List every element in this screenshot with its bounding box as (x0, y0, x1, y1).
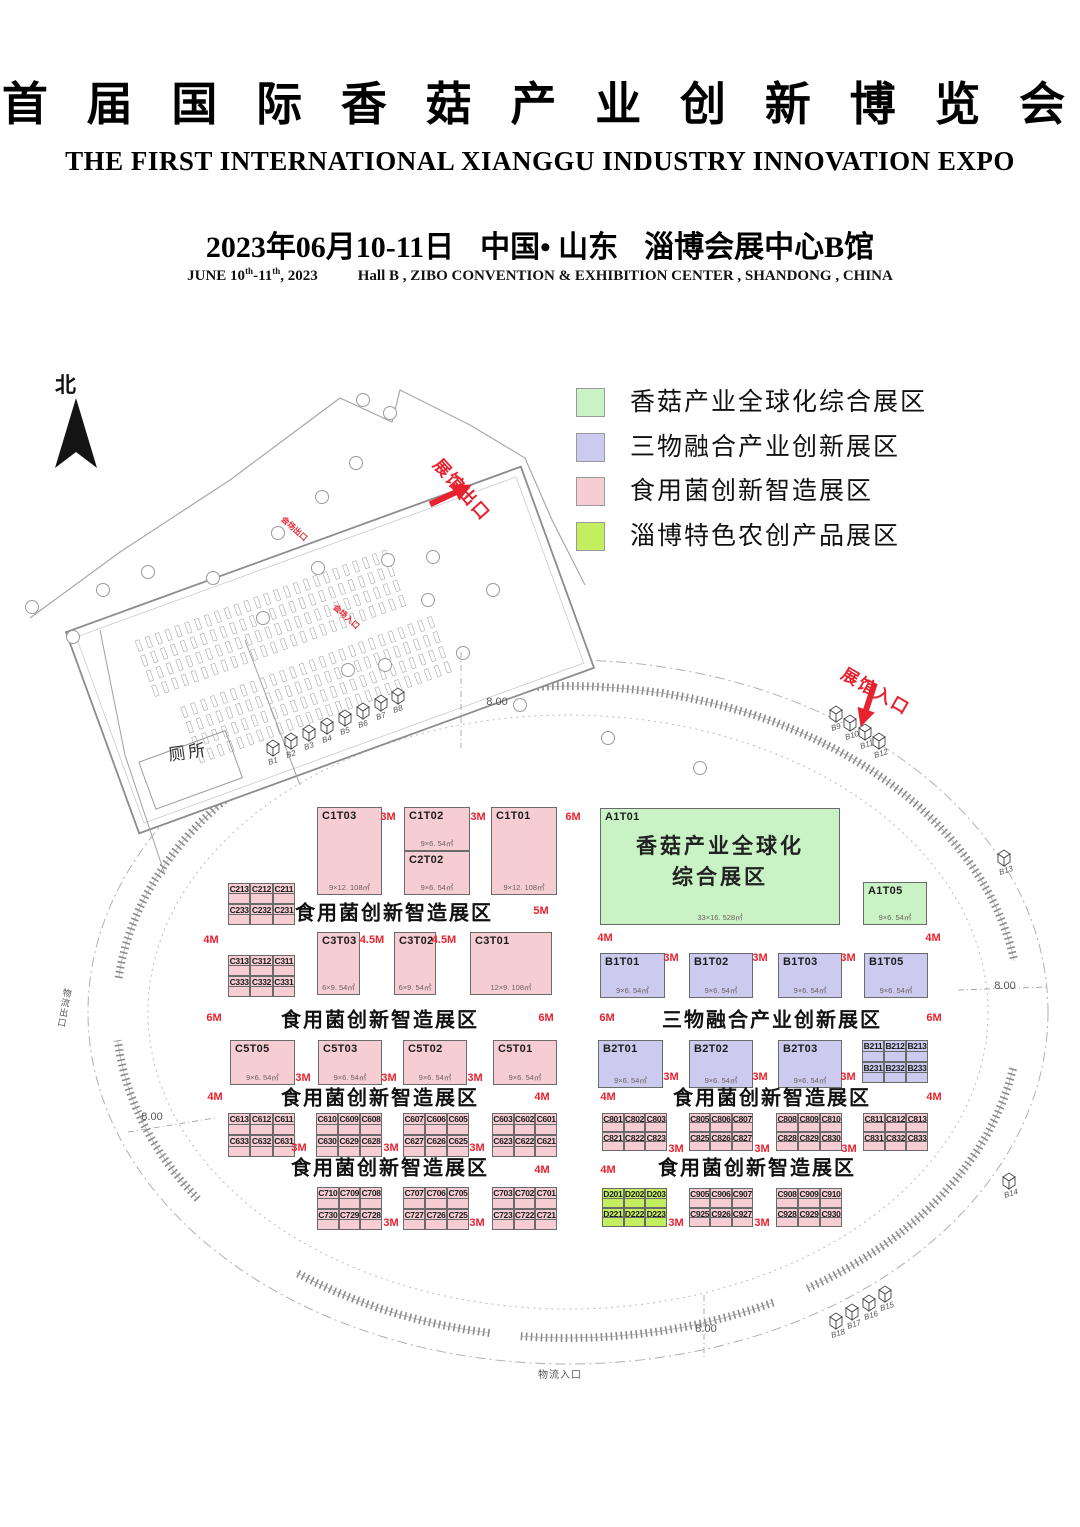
booth-C802[interactable]: C802 (624, 1113, 646, 1132)
booth-id: A1T05 (868, 885, 903, 897)
booth-id: C807 (733, 1114, 752, 1123)
booth-dimensions: 9×6. 54㎡ (779, 1075, 841, 1086)
booth-C601[interactable]: C601 (535, 1113, 557, 1135)
booth-id: C728 (361, 1210, 381, 1221)
booth-id: C627 (404, 1136, 424, 1147)
booth-id: C212 (251, 884, 271, 894)
booth-C833[interactable]: C833 (906, 1132, 928, 1151)
booth-group: C805C806C807C825C826C827 (689, 1113, 753, 1151)
svg-text:B15: B15 (879, 1300, 896, 1313)
booth-id: C813 (907, 1114, 927, 1123)
booth-id: C805 (690, 1114, 709, 1123)
booth-C602[interactable]: C602 (514, 1113, 536, 1135)
booth-id: C3T01 (475, 935, 510, 947)
booth-C708[interactable]: C708 (360, 1187, 382, 1209)
booth-C730[interactable]: C730 (317, 1209, 339, 1231)
booth-dimensions: 9×12. 108㎡ (318, 882, 381, 893)
booth-id: D223 (646, 1209, 666, 1219)
booth-id: C613 (229, 1114, 249, 1125)
booth-dimensions: 9×6. 54㎡ (864, 912, 926, 923)
booth-C705[interactable]: C705 (447, 1187, 469, 1209)
logistics-entrance-label: 物流入口 (538, 1366, 582, 1381)
booth-C621[interactable]: C621 (535, 1135, 557, 1157)
booth-group: C603C602C601C623C622C621 (492, 1113, 557, 1157)
booth-group: C908C909C910C928C929C930 (776, 1188, 842, 1227)
booth-C626[interactable]: C626 (425, 1135, 447, 1157)
booth-C606[interactable]: C606 (425, 1113, 447, 1135)
booth-dimensions: 9×6. 54㎡ (690, 1075, 752, 1086)
booth-id: C828 (777, 1133, 797, 1142)
booth-C825[interactable]: C825 (689, 1132, 710, 1151)
booth-id: C708 (361, 1188, 381, 1199)
booth-C313[interactable]: C313 (228, 955, 250, 976)
perimeter-booth-B12: B12 (873, 733, 890, 760)
booth-B212[interactable]: B212 (884, 1040, 906, 1062)
booth-C929[interactable]: C929 (798, 1208, 820, 1228)
perimeter-booth-B4: B4 (321, 718, 334, 745)
perimeter-booth-B13: B13 (998, 850, 1015, 877)
booth-id: C710 (318, 1188, 338, 1199)
booth-C808[interactable]: C808 (776, 1113, 798, 1132)
svg-text:B16: B16 (863, 1309, 880, 1322)
booth-C805[interactable]: C805 (689, 1113, 710, 1132)
booth-group: B211B212B213B231B232B233 (862, 1040, 928, 1083)
booth-dimensions: 9×6. 54㎡ (690, 985, 752, 996)
booth-id: C810 (821, 1114, 841, 1123)
booth-id: C1T01 (496, 810, 531, 822)
booth-B231[interactable]: B231 (862, 1062, 884, 1084)
perimeter-booth-B10: B10 (844, 715, 861, 742)
booth-C907[interactable]: C907 (732, 1188, 753, 1208)
booth-C803[interactable]: C803 (645, 1113, 667, 1132)
booth-group: C707C706C705C727C726C725 (403, 1187, 469, 1230)
booth-C821[interactable]: C821 (602, 1132, 624, 1151)
booth-id: C5T01 (498, 1043, 533, 1055)
booth-id: C233 (229, 905, 249, 915)
booth-id: C703 (493, 1188, 513, 1199)
booth-id: C232 (251, 905, 271, 915)
booth-id: C722 (515, 1210, 535, 1221)
plan-linework: 北B1B2B3B4B5B6B7B8B9B10B11B12B13B14B18B17… (0, 0, 1080, 1527)
booth-id: C726 (426, 1210, 446, 1221)
booth-B213[interactable]: B213 (906, 1040, 928, 1062)
booth-id: C830 (821, 1133, 841, 1142)
booth-C702[interactable]: C702 (514, 1187, 536, 1209)
booth-C630[interactable]: C630 (316, 1135, 338, 1157)
booth-C332[interactable]: C332 (250, 976, 272, 997)
booth-C827[interactable]: C827 (732, 1132, 753, 1151)
booth-id: C622 (515, 1136, 535, 1147)
booth-C930[interactable]: C930 (820, 1208, 842, 1228)
booth-group: C808C809C810C828C829C830 (776, 1113, 842, 1151)
booth-C906[interactable]: C906 (710, 1188, 731, 1208)
booth-C905[interactable]: C905 (689, 1188, 710, 1208)
perimeter-booth-B2: B2 (285, 733, 298, 760)
booth-C701[interactable]: C701 (535, 1187, 557, 1209)
booth-B233[interactable]: B233 (906, 1062, 928, 1084)
booth-group: C905C906C907C925C926C927 (689, 1188, 753, 1227)
booth-id: C808 (777, 1114, 797, 1123)
booth-C633[interactable]: C633 (228, 1135, 250, 1157)
booth-C707[interactable]: C707 (403, 1187, 425, 1209)
perimeter-booth-B8: B8 (392, 688, 405, 715)
booth-id: C927 (733, 1209, 752, 1219)
zone-name: 香菇产业全球化综合展区 (601, 831, 839, 893)
booth-id: C602 (515, 1114, 535, 1125)
booth-id: B1T02 (694, 956, 729, 968)
booth-id: C811 (864, 1114, 884, 1123)
booth-id: C629 (339, 1136, 359, 1147)
perimeter-booth-B3: B3 (303, 725, 316, 752)
booth-id: B233 (907, 1063, 927, 1074)
booth-C233[interactable]: C233 (228, 904, 250, 925)
booth-id: B212 (885, 1041, 905, 1052)
booth-id: C601 (536, 1114, 556, 1125)
booth-B2T02[interactable]: B2T029×6. 54㎡ (689, 1040, 753, 1088)
booth-group: C703C702C701C723C722C721 (492, 1187, 557, 1230)
booth-id: C928 (777, 1209, 797, 1219)
booth-dimensions: 9×6. 54㎡ (494, 1072, 556, 1083)
booth-C830[interactable]: C830 (820, 1132, 842, 1151)
booth-C829[interactable]: C829 (798, 1132, 820, 1151)
booth-id: C727 (404, 1210, 424, 1221)
expo-floorplan-page: 首 届 国 际 香 菇 产 业 创 新 博 览 会 THE FIRST INTE… (0, 0, 1080, 1527)
booth-id: C723 (493, 1210, 513, 1221)
booth-C613[interactable]: C613 (228, 1113, 250, 1135)
booth-C908[interactable]: C908 (776, 1188, 798, 1208)
booth-id: C607 (404, 1114, 424, 1125)
booth-id: C707 (404, 1188, 424, 1199)
perimeter-booth-B17: B17 (846, 1304, 863, 1331)
booth-C726[interactable]: C726 (425, 1209, 447, 1231)
booth-group: C607C606C605C627C626C625 (403, 1113, 469, 1157)
booth-D223[interactable]: D223 (645, 1208, 667, 1228)
booth-id: C612 (251, 1114, 271, 1125)
booth-id: B231 (863, 1063, 883, 1074)
booth-C709[interactable]: C709 (339, 1187, 361, 1209)
booth-id: C332 (251, 977, 271, 987)
booth-C925[interactable]: C925 (689, 1208, 710, 1228)
booth-id: D201 (603, 1189, 623, 1199)
booth-id: C802 (625, 1114, 645, 1123)
booth-id: C609 (339, 1114, 359, 1125)
booth-C812[interactable]: C812 (885, 1113, 907, 1132)
booth-group: C610C609C608C630C629C628 (316, 1113, 382, 1157)
booth-C3T03[interactable]: C3T036×9. 54㎡ (317, 932, 360, 995)
booth-C928[interactable]: C928 (776, 1208, 798, 1228)
booth-C609[interactable]: C609 (338, 1113, 360, 1135)
booth-C909[interactable]: C909 (798, 1188, 820, 1208)
booth-id: C823 (646, 1133, 666, 1142)
booth-C2T02[interactable]: C2T029×6. 54㎡ (404, 851, 470, 895)
booth-C828[interactable]: C828 (776, 1132, 798, 1151)
booth-id: C626 (426, 1136, 446, 1147)
booth-dimensions: 9×6. 54㎡ (231, 1072, 294, 1083)
booth-C801[interactable]: C801 (602, 1113, 624, 1132)
booth-id: C809 (799, 1114, 819, 1123)
booth-id: C822 (625, 1133, 645, 1142)
booth-C729[interactable]: C729 (339, 1209, 361, 1231)
booth-id: C826 (711, 1133, 730, 1142)
booth-B232[interactable]: B232 (884, 1062, 906, 1084)
booth-B1T01[interactable]: B1T019×6. 54㎡ (600, 953, 665, 998)
booth-C725[interactable]: C725 (447, 1209, 469, 1231)
booth-id: C812 (886, 1114, 906, 1123)
booth-C627[interactable]: C627 (403, 1135, 425, 1157)
booth-C331[interactable]: C331 (273, 976, 295, 997)
svg-text:B13: B13 (998, 864, 1015, 877)
booth-id: C831 (864, 1133, 884, 1142)
booth-dimensions: 6×9. 54㎡ (395, 982, 435, 993)
booth-dimensions: 9×6. 54㎡ (404, 1072, 466, 1083)
booth-id: C313 (229, 956, 249, 966)
booth-id: C709 (340, 1188, 360, 1199)
booth-A1T01[interactable]: A1T01香菇产业全球化综合展区33×16. 528㎡ (600, 808, 840, 925)
booth-C807[interactable]: C807 (732, 1113, 753, 1132)
booth-id: C2T02 (409, 854, 444, 866)
booth-id: C1T03 (322, 810, 357, 822)
svg-text:B11: B11 (859, 738, 875, 751)
booth-D222[interactable]: D222 (624, 1208, 646, 1228)
booth-id: C610 (317, 1114, 337, 1125)
booth-id: C721 (536, 1210, 556, 1221)
booth-dimensions: 9×6. 54㎡ (601, 985, 664, 996)
booth-id: C628 (361, 1136, 381, 1147)
booth-id: C725 (448, 1210, 468, 1221)
booth-id: C632 (251, 1136, 271, 1147)
booth-C832[interactable]: C832 (885, 1132, 907, 1151)
booth-C211[interactable]: C211 (273, 883, 295, 904)
booth-id: C701 (536, 1188, 556, 1199)
booth-group: C613C612C611C633C632C631 (228, 1113, 295, 1157)
booth-C622[interactable]: C622 (514, 1135, 536, 1157)
perimeter-booth-B6: B6 (357, 703, 370, 730)
booth-id: C829 (799, 1133, 819, 1142)
booth-C611[interactable]: C611 (273, 1113, 295, 1135)
perimeter-booth-B14: B14 (1003, 1173, 1020, 1200)
booth-id: C801 (603, 1114, 623, 1123)
perimeter-booth-B18: B18 (830, 1313, 847, 1340)
booth-id: C603 (493, 1114, 513, 1125)
booth-id: C1T02 (409, 810, 444, 822)
booth-dimensions: 9×6. 54㎡ (599, 1075, 662, 1086)
booth-B1T02[interactable]: B1T029×6. 54㎡ (689, 953, 753, 998)
booth-id: B1T01 (605, 956, 640, 968)
booth-id: C806 (711, 1114, 730, 1123)
booth-C926[interactable]: C926 (710, 1208, 731, 1228)
booth-C831[interactable]: C831 (863, 1132, 885, 1151)
booth-id: C909 (799, 1189, 819, 1199)
booth-id: C5T05 (235, 1043, 270, 1055)
perimeter-booth-B5: B5 (339, 710, 352, 737)
booth-id: C631 (274, 1136, 294, 1147)
booth-C723[interactable]: C723 (492, 1209, 514, 1231)
booth-id: C605 (448, 1114, 468, 1125)
booth-id: C231 (274, 905, 294, 915)
booth-C605[interactable]: C605 (447, 1113, 469, 1135)
booth-id: C608 (361, 1114, 381, 1125)
booth-C607[interactable]: C607 (403, 1113, 425, 1135)
booth-C608[interactable]: C608 (360, 1113, 382, 1135)
booth-group: C213C212C211C233C232C231 (228, 883, 295, 925)
booth-id: C611 (274, 1114, 294, 1125)
perimeter-booth-B11: B11 (859, 724, 875, 751)
booth-D202[interactable]: D202 (624, 1188, 646, 1208)
booth-C629[interactable]: C629 (338, 1135, 360, 1157)
booth-C3T02[interactable]: C3T026×9. 54㎡ (394, 932, 436, 995)
booth-id: C908 (777, 1189, 797, 1199)
booth-B211[interactable]: B211 (862, 1040, 884, 1062)
booth-B1T03[interactable]: B1T039×6. 54㎡ (778, 953, 842, 998)
booth-id: C833 (907, 1133, 927, 1142)
booth-C5T02[interactable]: C5T029×6. 54㎡ (403, 1040, 467, 1085)
booth-id: C730 (318, 1210, 338, 1221)
booth-C312[interactable]: C312 (250, 955, 272, 976)
booth-id: B2T02 (694, 1043, 729, 1055)
svg-text:B17: B17 (846, 1318, 863, 1331)
booth-C721[interactable]: C721 (535, 1209, 557, 1231)
booth-A1T05[interactable]: A1T059×6. 54㎡ (863, 882, 927, 925)
booth-id: C3T03 (322, 935, 357, 947)
svg-text:B14: B14 (1003, 1187, 1020, 1200)
booth-dimensions: 9×6. 54㎡ (319, 1072, 381, 1083)
booth-id: B1T05 (869, 956, 904, 968)
booth-C1T03[interactable]: C1T039×12. 108㎡ (317, 807, 382, 895)
booth-id: C623 (493, 1136, 513, 1147)
booth-id: C633 (229, 1136, 249, 1147)
booth-id: D203 (646, 1189, 666, 1199)
booth-C706[interactable]: C706 (425, 1187, 447, 1209)
booth-id: C907 (733, 1189, 752, 1199)
booth-C612[interactable]: C612 (250, 1113, 272, 1135)
booth-id: C625 (448, 1136, 468, 1147)
conference-hall (66, 467, 594, 834)
booth-id: D221 (603, 1209, 623, 1219)
booth-D203[interactable]: D203 (645, 1188, 667, 1208)
booth-C1T01[interactable]: C1T019×12. 108㎡ (491, 807, 557, 895)
booth-D221[interactable]: D221 (602, 1208, 624, 1228)
booth-C811[interactable]: C811 (863, 1113, 885, 1132)
booth-dimensions: 9×6. 54㎡ (405, 882, 469, 893)
booth-id: B213 (907, 1041, 927, 1052)
booth-B2T01[interactable]: B2T019×6. 54㎡ (598, 1040, 663, 1088)
booth-id: C706 (426, 1188, 446, 1199)
booth-group: C801C802C803C821C822C823 (602, 1113, 667, 1151)
booth-C728[interactable]: C728 (360, 1209, 382, 1231)
perimeter-booth-B9: B9 (830, 706, 843, 733)
booth-C631[interactable]: C631 (273, 1135, 295, 1157)
booth-id: C821 (603, 1133, 623, 1142)
booth-D201[interactable]: D201 (602, 1188, 624, 1208)
booth-C610[interactable]: C610 (316, 1113, 338, 1135)
booth-C727[interactable]: C727 (403, 1209, 425, 1231)
booth-C910[interactable]: C910 (820, 1188, 842, 1208)
booth-id: C312 (251, 956, 271, 966)
booth-C1T02[interactable]: C1T029×6. 54㎡ (404, 807, 470, 851)
booth-id: C827 (733, 1133, 752, 1142)
booth-id: C3T02 (399, 935, 434, 947)
booth-C806[interactable]: C806 (710, 1113, 731, 1132)
booth-id: C906 (711, 1189, 730, 1199)
booth-C628[interactable]: C628 (360, 1135, 382, 1157)
booth-C625[interactable]: C625 (447, 1135, 469, 1157)
booth-id: C825 (690, 1133, 709, 1142)
perimeter-booth-B15: B15 (879, 1286, 896, 1313)
booth-C813[interactable]: C813 (906, 1113, 928, 1132)
booth-id: C621 (536, 1136, 556, 1147)
svg-text:B18: B18 (830, 1327, 847, 1340)
perimeter-booth-B7: B7 (375, 695, 388, 722)
booth-C5T03[interactable]: C5T039×6. 54㎡ (318, 1040, 382, 1085)
booth-C826[interactable]: C826 (710, 1132, 731, 1151)
booth-C822[interactable]: C822 (624, 1132, 646, 1151)
booth-group: D201D202D203D221D222D223 (602, 1188, 667, 1227)
booth-id: C905 (690, 1189, 709, 1199)
booth-C722[interactable]: C722 (514, 1209, 536, 1231)
booth-C5T01[interactable]: C5T019×6. 54㎡ (493, 1040, 557, 1085)
booth-C632[interactable]: C632 (250, 1135, 272, 1157)
booth-C809[interactable]: C809 (798, 1113, 820, 1132)
booth-dimensions: 9×6. 54㎡ (865, 985, 927, 996)
booth-id: B2T03 (783, 1043, 818, 1055)
booth-C213[interactable]: C213 (228, 883, 250, 904)
svg-text:B10: B10 (844, 729, 861, 742)
booth-C5T05[interactable]: C5T059×6. 54㎡ (230, 1040, 295, 1085)
booth-C333[interactable]: C333 (228, 976, 250, 997)
booth-C212[interactable]: C212 (250, 883, 272, 904)
booth-C810[interactable]: C810 (820, 1113, 842, 1132)
booth-B1T05[interactable]: B1T059×6. 54㎡ (864, 953, 928, 998)
booth-C703[interactable]: C703 (492, 1187, 514, 1209)
booth-id: C832 (886, 1133, 906, 1142)
booth-C823[interactable]: C823 (645, 1132, 667, 1151)
booth-id: C929 (799, 1209, 819, 1219)
booth-id: B211 (863, 1041, 883, 1052)
booth-id: C333 (229, 977, 249, 987)
booth-C232[interactable]: C232 (250, 904, 272, 925)
booth-id: C311 (274, 956, 294, 966)
booth-B2T03[interactable]: B2T039×6. 54㎡ (778, 1040, 842, 1088)
booth-id: C925 (690, 1209, 709, 1219)
booth-dimensions: 9×6. 54㎡ (405, 838, 469, 849)
booth-C927[interactable]: C927 (732, 1208, 753, 1228)
booth-id: C213 (229, 884, 249, 894)
booth-id: C331 (274, 977, 294, 987)
svg-text:北: 北 (55, 374, 76, 397)
booth-id: B2T01 (603, 1043, 638, 1055)
booth-C3T01[interactable]: C3T0112×9. 108㎡ (470, 932, 552, 995)
booth-C623[interactable]: C623 (492, 1135, 514, 1157)
booth-id: D202 (625, 1189, 645, 1199)
booth-C603[interactable]: C603 (492, 1113, 514, 1135)
booth-C710[interactable]: C710 (317, 1187, 339, 1209)
booth-id: C211 (274, 884, 294, 894)
perimeter-booth-B1: B1 (267, 740, 279, 767)
booth-dimensions: 6×9. 54㎡ (318, 982, 359, 993)
booth-id: C803 (646, 1114, 666, 1123)
perimeter-booth-B16: B16 (863, 1295, 880, 1322)
booth-id: C5T03 (323, 1043, 358, 1055)
svg-text:B9: B9 (830, 721, 843, 733)
booth-id: C630 (317, 1136, 337, 1147)
booth-C311[interactable]: C311 (273, 955, 295, 976)
booth-id: C702 (515, 1188, 535, 1199)
booth-id: B1T03 (783, 956, 818, 968)
booth-id: C705 (448, 1188, 468, 1199)
booth-C231[interactable]: C231 (273, 904, 295, 925)
floor-plan: 北B1B2B3B4B5B6B7B8B9B10B11B12B13B14B18B17… (0, 0, 1080, 1527)
booth-dimensions: 12×9. 108㎡ (471, 982, 551, 993)
